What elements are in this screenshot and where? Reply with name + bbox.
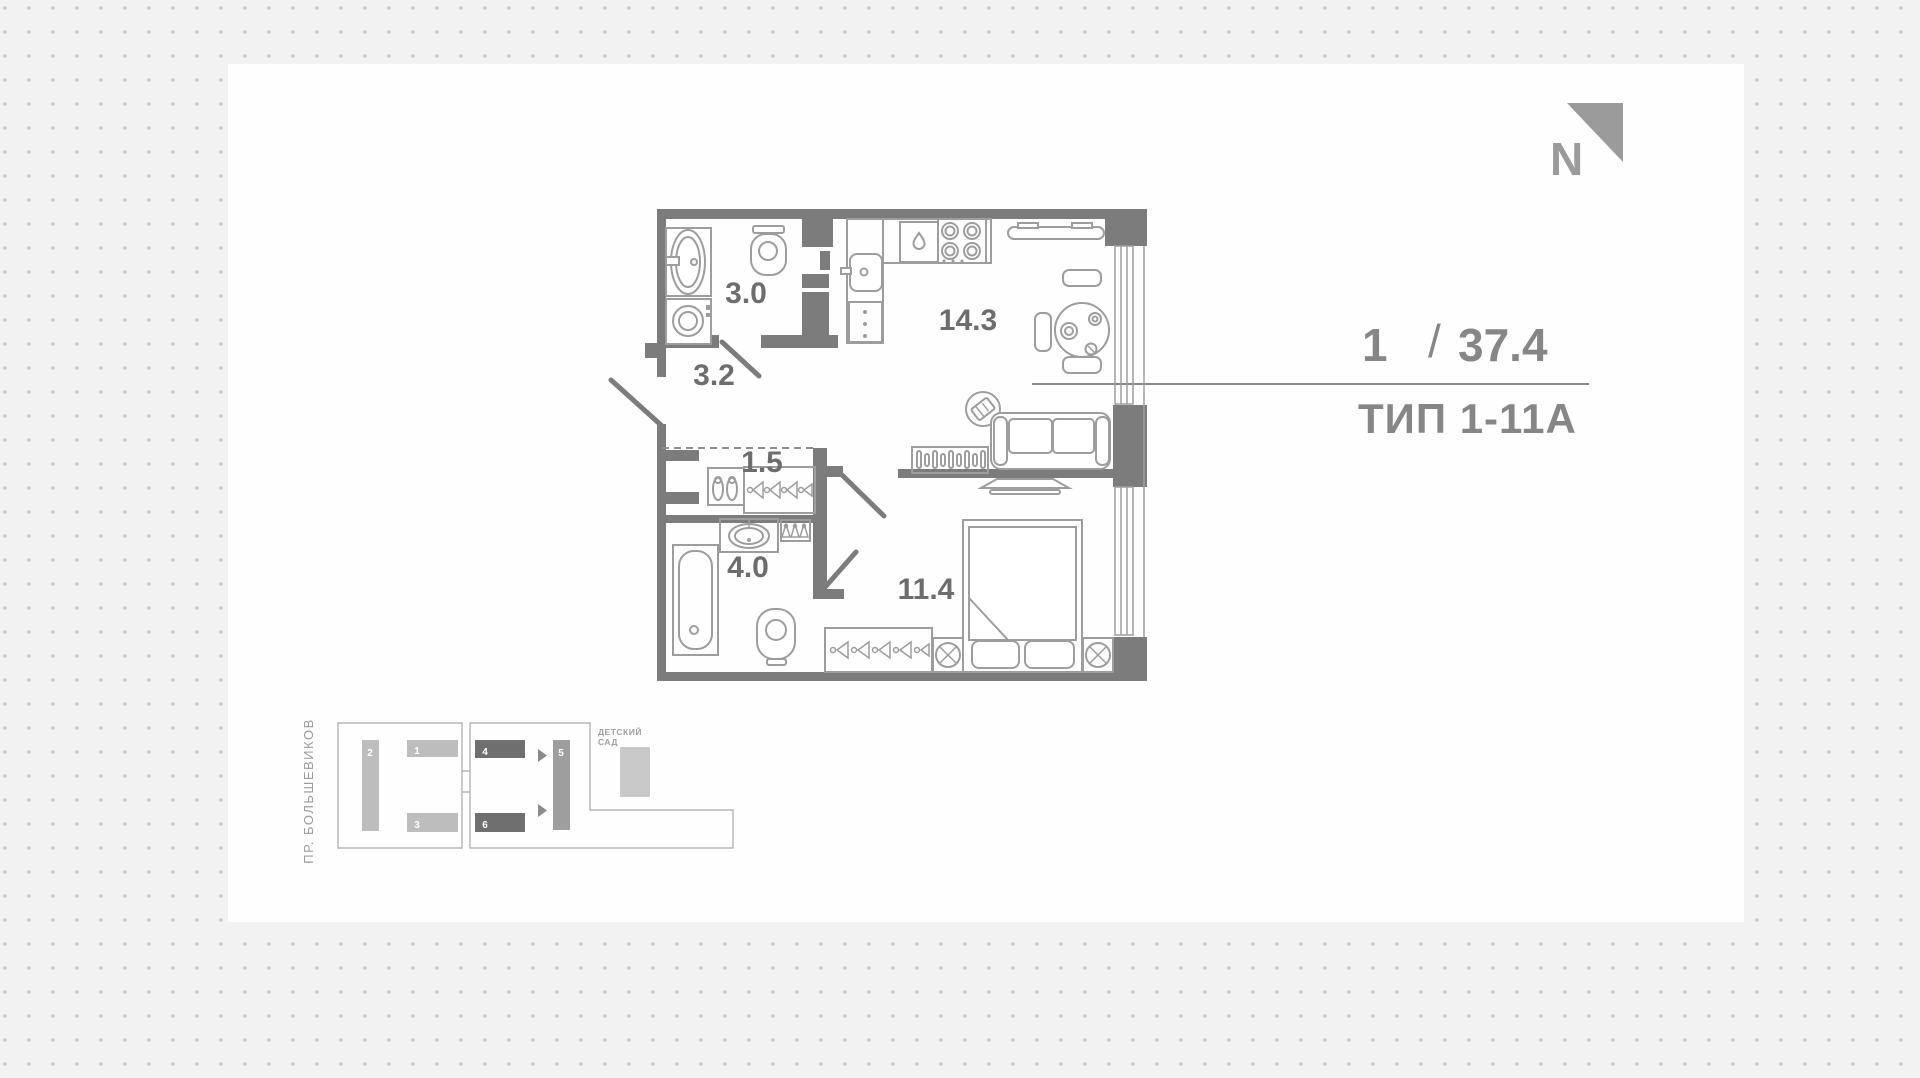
site-plot-connector [462,771,470,792]
washing-machine-icon [666,299,711,344]
room-label-bedroom: 11.4 [898,573,955,606]
building-6-number: 6 [482,820,488,831]
entrance-door-icon [611,380,661,425]
room-label-bathroom-small: 3.0 [725,277,767,310]
towel-hooks-icon [781,520,810,541]
room-label-hallway: 3.2 [693,359,735,392]
nightstand-lamp-right-icon [1083,638,1113,672]
room-label-closet: 1.5 [741,446,783,479]
apartment-type-label: ТИП 1-11А [1358,398,1577,440]
droplet-icon [914,233,925,249]
arrow-right-top-icon [538,749,547,762]
building-1-number: 1 [414,746,420,757]
building-5-number: 5 [558,748,564,759]
bed-icon [963,520,1082,672]
building-2-number: 2 [367,748,373,759]
floorplan-page: { "north_indicator": { "label": "N" }, "… [0,0,1920,1078]
tv-icon [981,479,1069,494]
stove-icon [938,219,986,263]
toilet-icon [757,609,795,665]
washbasin-icon [666,228,711,296]
kindergarten-label-line1: ДЕТСКИЙ [598,726,642,737]
shoe-rack-icon [708,468,744,505]
building-4-number: 4 [482,747,488,758]
kindergarten-label-line2: САД [598,737,618,747]
room-label-kitchen-living: 14.3 [939,304,997,337]
living-door-icon [842,475,884,516]
total-area: 37.4 [1458,322,1548,368]
kindergarten-building [620,747,650,797]
wardrobe-bedroom-icon [825,628,932,672]
room-label-bathroom: 4.0 [727,551,769,584]
street-label: ПР. БОЛЬШЕВИКОВ [301,718,316,864]
hood-shelf-icon [1008,223,1104,239]
arrow-right-bottom-icon [538,804,547,817]
building-3-number: 3 [414,820,420,831]
floor-plan: 3.0 3.2 1.5 4.0 14.3 11.4 [600,200,1160,700]
title-divider: / [1428,318,1441,364]
rooms-count: 1 [1362,322,1388,368]
sink-icon [720,519,778,552]
kitchen-sink-icon [841,219,883,343]
north-letter: N [1550,133,1583,183]
dining-table-icon [1035,270,1109,373]
north-arrow: N [1548,95,1632,183]
site-map: ПР. БОЛЬШЕВИКОВ ДЕТСКИЙ САД 2 1 3 4 5 6 [295,700,745,880]
bathtub-icon [673,545,718,655]
toilet-top-icon [751,226,786,275]
nightstand-lamp-left-icon [933,638,963,672]
sofa-icon [991,413,1110,469]
